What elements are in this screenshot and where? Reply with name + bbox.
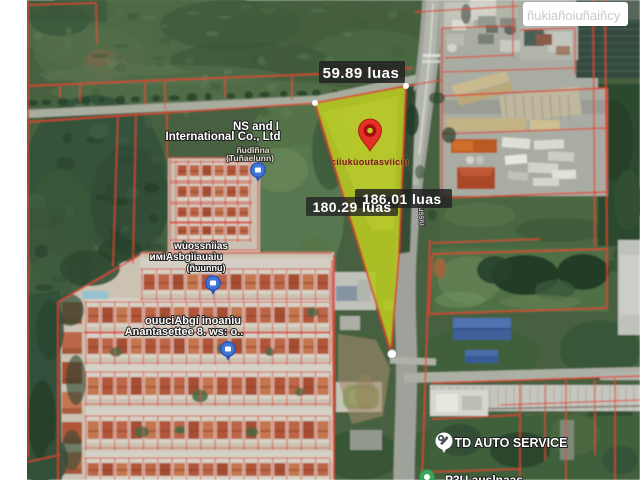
svg-text:180.29 luas: 180.29 luas	[312, 199, 391, 215]
svg-text:ñukiañoiuñaiñcy: ñukiañoiuñaiñcy	[527, 8, 621, 23]
svg-text:P3U auslnaas: P3U auslnaas	[445, 473, 523, 480]
svg-text:ciiukùoutasviiciu: ciiukùoutasviiciu	[331, 157, 409, 167]
svg-text:TD AUTO SERVICE: TD AUTO SERVICE	[455, 436, 568, 450]
svg-text:имiAsbgìiauaìu: имiAsbgìiauaìu	[150, 252, 223, 263]
svg-text:Anantasettee 8. ws: o..: Anantasettee 8. ws: o..	[125, 326, 244, 338]
svg-text:(ñuunnu): (ñuunnu)	[187, 263, 226, 273]
svg-text:International Co., Ltd: International Co., Ltd	[166, 131, 281, 143]
svg-text:(Tuñaelunn): (Tuñaelunn)	[226, 153, 274, 163]
svg-text:59.89 luas: 59.89 luas	[323, 65, 400, 82]
svg-text:wùossnîias: wùossnîias	[173, 241, 228, 252]
